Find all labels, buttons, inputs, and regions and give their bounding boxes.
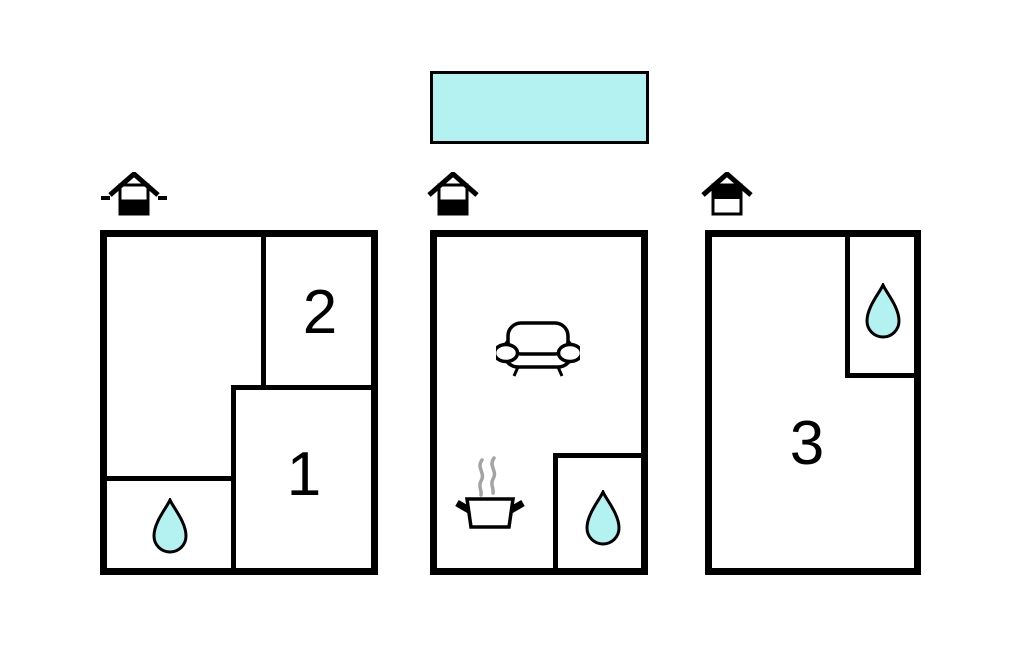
house-level-icon-upper-floor xyxy=(694,172,760,218)
interior-wall xyxy=(845,373,914,378)
interior-wall xyxy=(231,385,371,390)
house-level-icon-basement xyxy=(101,172,167,218)
floor-plan-diagram: 2 1 xyxy=(0,0,1024,652)
house-icon xyxy=(420,172,486,218)
room-number-label: 2 xyxy=(303,282,337,344)
floor-plan-1: 2 1 xyxy=(100,230,378,575)
cooking-pot-icon xyxy=(454,456,526,535)
water-drop-icon xyxy=(865,283,901,344)
room-number-label: 3 xyxy=(790,413,824,475)
water-drop-icon xyxy=(152,498,188,559)
interior-wall xyxy=(845,237,850,378)
interior-wall xyxy=(107,476,236,481)
house-icon xyxy=(101,172,167,218)
house-level-icon-ground-floor xyxy=(420,172,486,218)
legend-bar xyxy=(430,71,649,144)
sofa-icon xyxy=(496,321,580,382)
interior-wall xyxy=(553,453,558,568)
house-icon xyxy=(694,172,760,218)
water-drop-icon xyxy=(585,490,621,551)
floor-plan-3: 3 xyxy=(705,230,921,575)
room-number-label: 1 xyxy=(287,444,321,506)
interior-wall xyxy=(553,453,641,458)
interior-wall xyxy=(261,237,266,389)
floor-plan-2 xyxy=(430,230,648,575)
